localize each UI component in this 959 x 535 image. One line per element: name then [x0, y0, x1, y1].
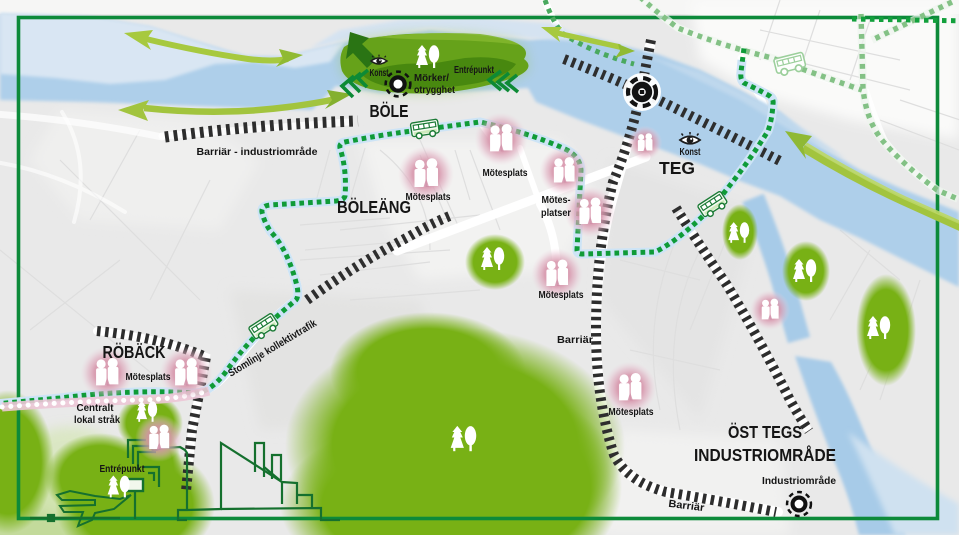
svg-text:Mötesplats: Mötesplats [539, 289, 584, 301]
svg-text:Entrépunkt: Entrépunkt [454, 64, 494, 76]
svg-text:TEG: TEG [659, 158, 695, 178]
svg-text:INDUSTRIOMRÅDE: INDUSTRIOMRÅDE [694, 445, 836, 465]
svg-text:RÖBÄCK: RÖBÄCK [103, 342, 166, 362]
svg-text:ÖST TEGS: ÖST TEGS [728, 422, 802, 442]
svg-text:Industriområde: Industriområde [762, 475, 836, 487]
svg-text:Mötesplats: Mötesplats [609, 406, 654, 418]
svg-text:Konst: Konst [370, 67, 389, 79]
svg-text:Mötes-: Mötes- [542, 194, 571, 206]
svg-text:Mörker/: Mörker/ [414, 72, 449, 84]
svg-text:otrygghet: otrygghet [414, 84, 455, 96]
svg-text:Centralt: Centralt [77, 402, 114, 414]
svg-text:Mötesplats: Mötesplats [406, 191, 451, 203]
svg-text:Barriär: Barriär [557, 334, 593, 346]
svg-text:Entrépunkt: Entrépunkt [100, 463, 145, 475]
svg-text:BÖLE: BÖLE [370, 101, 409, 121]
svg-text:Konst: Konst [680, 146, 701, 158]
svg-text:Mötesplats: Mötesplats [126, 371, 171, 383]
svg-text:Barriär - industriområde: Barriär - industriområde [197, 146, 318, 158]
svg-text:BÖLEÄNG: BÖLEÄNG [337, 197, 411, 217]
svg-text:platser: platser [541, 207, 571, 219]
svg-text:Mötesplats: Mötesplats [483, 167, 528, 179]
svg-text:lokal stråk: lokal stråk [74, 414, 120, 426]
